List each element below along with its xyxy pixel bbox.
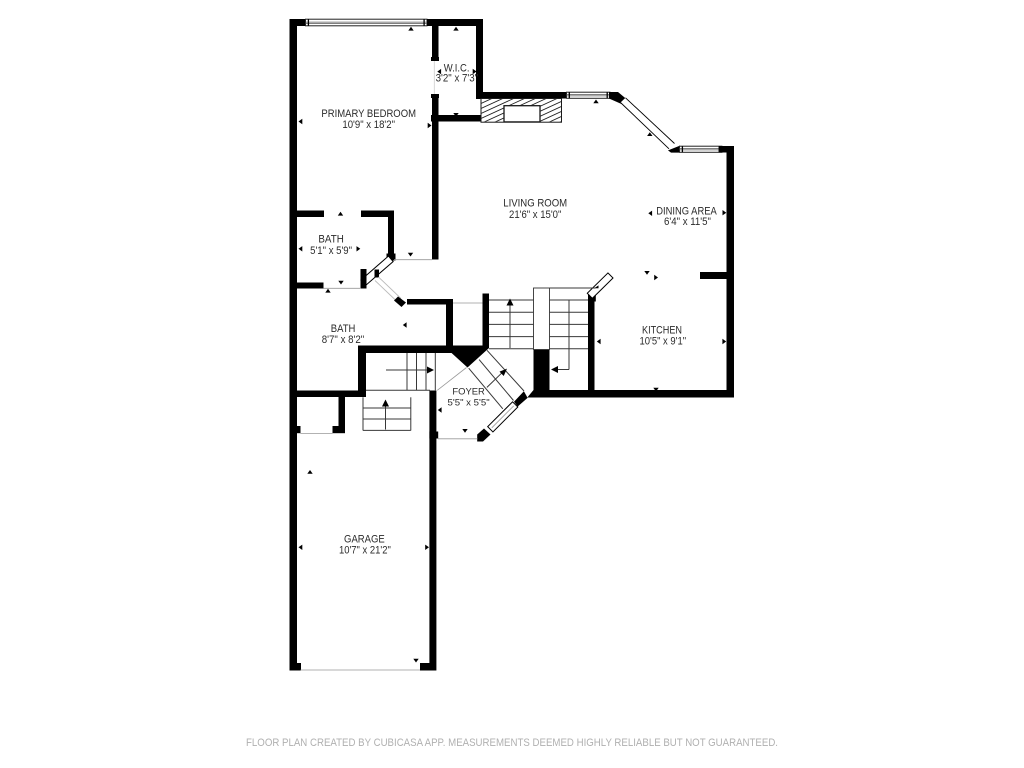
svg-text:5'1" x 5'9": 5'1" x 5'9": [310, 245, 352, 257]
svg-text:3'2" x 7'3": 3'2" x 7'3": [436, 73, 479, 85]
svg-text:PRIMARY BEDROOM: PRIMARY BEDROOM: [321, 108, 416, 120]
svg-text:10'7" x 21'2": 10'7" x 21'2": [339, 545, 391, 557]
svg-text:BATH: BATH: [318, 233, 343, 245]
svg-text:5'5" x 5'5": 5'5" x 5'5": [448, 397, 490, 408]
svg-text:LIVING ROOM: LIVING ROOM: [503, 198, 567, 210]
svg-text:6'4" x 11'5": 6'4" x 11'5": [664, 216, 711, 228]
svg-text:21'6" x 15'0": 21'6" x 15'0": [509, 209, 562, 221]
svg-text:8'7" x 8'2": 8'7" x 8'2": [322, 334, 365, 346]
svg-text:GARAGE: GARAGE: [344, 533, 385, 545]
svg-text:FLOOR PLAN CREATED BY CUBICASA: FLOOR PLAN CREATED BY CUBICASA APP. MEAS…: [246, 737, 778, 749]
svg-text:10'5" x 9'1": 10'5" x 9'1": [640, 336, 687, 348]
svg-text:10'9" x 18'2": 10'9" x 18'2": [342, 119, 395, 131]
svg-text:FOYER: FOYER: [452, 387, 485, 398]
svg-text:KITCHEN: KITCHEN: [642, 324, 682, 336]
